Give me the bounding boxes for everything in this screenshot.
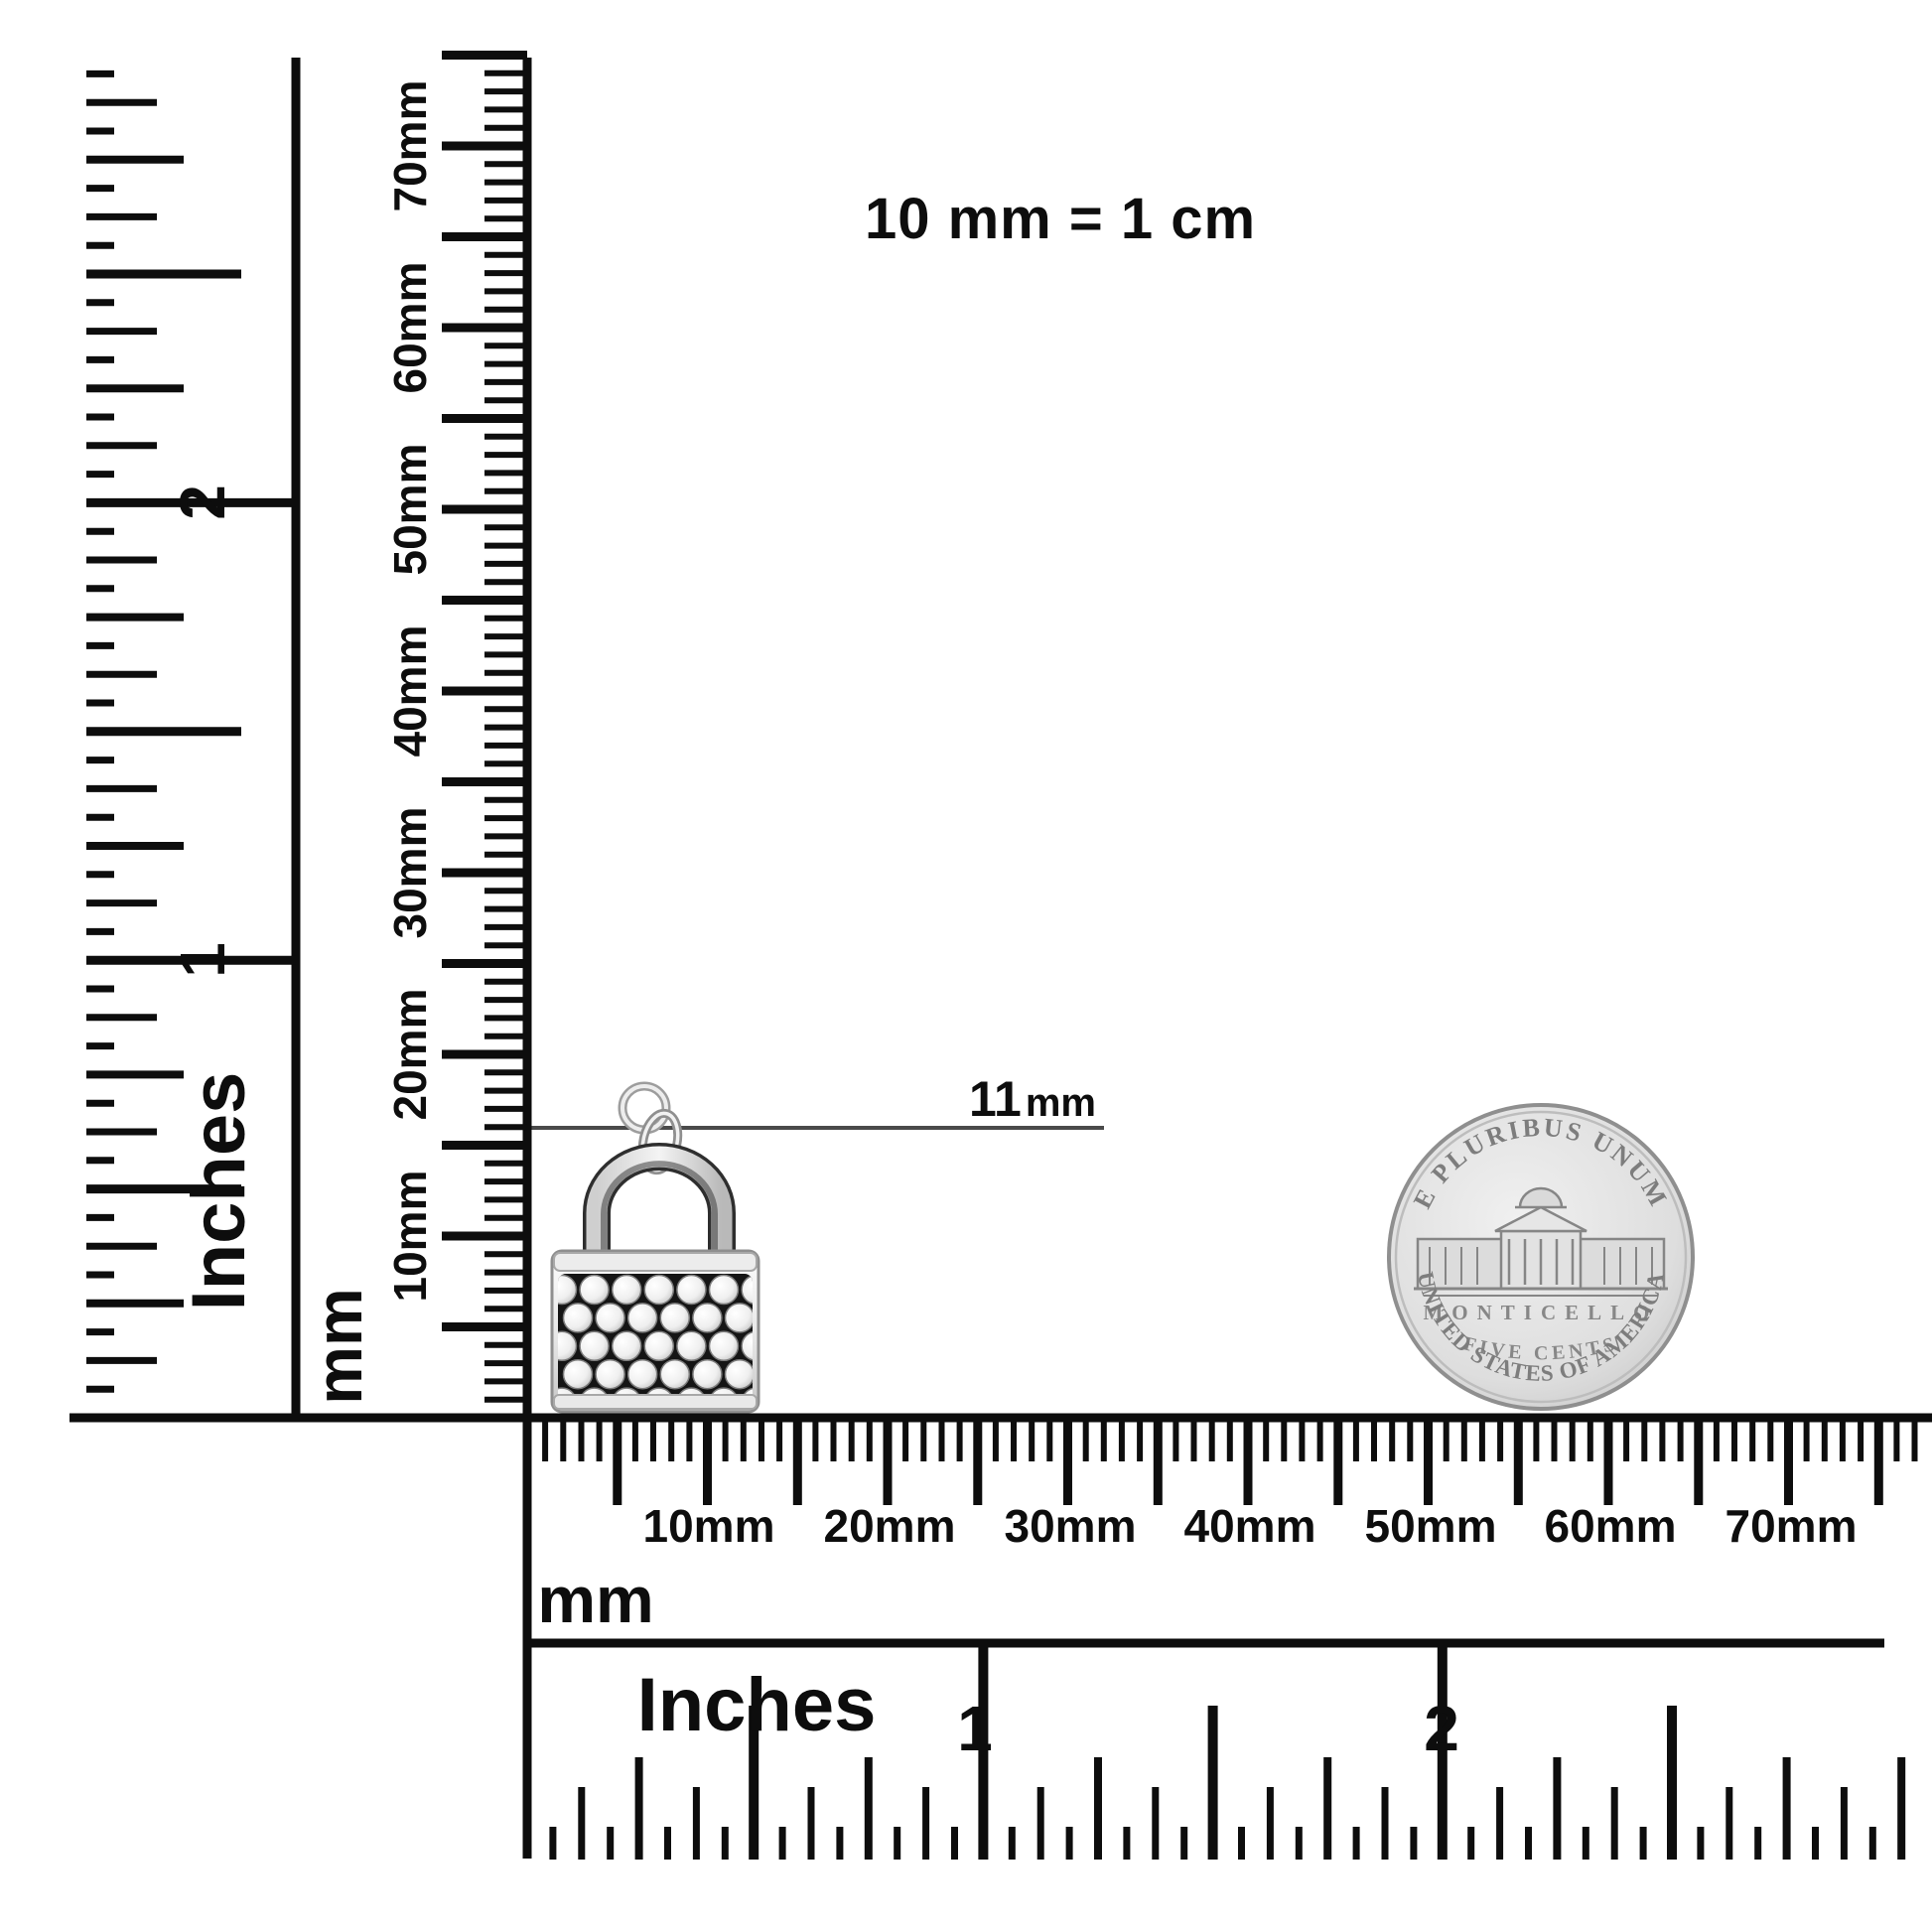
left-mm-ruler-ticks bbox=[442, 56, 527, 1400]
pave-diamond bbox=[677, 1331, 706, 1360]
ruler-tick-set bbox=[754, 1647, 1672, 1860]
bottom-mm-unit: mm bbox=[537, 1563, 653, 1636]
bottom-inches-ruler: Inches 1 2 bbox=[523, 1643, 1901, 1860]
pave-diamond bbox=[710, 1331, 739, 1360]
lock-body-bottom-bar bbox=[554, 1395, 757, 1409]
bottom-mm-label-10: 10mm bbox=[643, 1500, 775, 1552]
bottom-mm-ruler: 10mm 20mm 30mm 40mm 50mm 60mm 70mm mm bbox=[69, 1414, 1932, 1859]
measurement-diagram: 11mm E PLURIBUS UNUM bbox=[0, 0, 1932, 1932]
ruler-tick-set bbox=[86, 274, 296, 1189]
ruler-tick-set bbox=[442, 56, 527, 1327]
scale-note: 10 mm = 1 cm bbox=[865, 187, 1256, 251]
left-mm-label-20: 20mm bbox=[384, 989, 436, 1121]
bottom-inches-unit: Inches bbox=[637, 1663, 877, 1747]
left-mm-label-60: 60mm bbox=[384, 262, 436, 394]
bottom-mm-label-20: 20mm bbox=[824, 1500, 956, 1552]
pave-diamond bbox=[628, 1360, 657, 1389]
bottom-mm-ruler-labels: 10mm 20mm 30mm 40mm 50mm 60mm 70mm bbox=[643, 1500, 1858, 1552]
pave-diamond bbox=[564, 1304, 593, 1332]
pave-diamond bbox=[726, 1360, 755, 1389]
pave-diamond bbox=[596, 1360, 624, 1389]
pave-diamond bbox=[628, 1304, 657, 1332]
left-mm-unit: mm bbox=[302, 1288, 375, 1404]
pave-diamond bbox=[693, 1360, 722, 1389]
shackle-inner-shade bbox=[604, 1164, 715, 1257]
pave-diamond bbox=[564, 1360, 593, 1389]
left-inches-unit: Inches bbox=[177, 1072, 261, 1311]
left-mm-label-40: 40mm bbox=[384, 625, 436, 758]
left-mm-label-10: 10mm bbox=[384, 1171, 436, 1303]
bottom-mm-label-70: 70mm bbox=[1725, 1500, 1858, 1552]
lock-body-top-bar bbox=[554, 1253, 757, 1271]
pave-diamond bbox=[613, 1331, 641, 1360]
pave-diamond bbox=[613, 1276, 641, 1305]
bottom-mm-label-40: 40mm bbox=[1184, 1500, 1316, 1552]
ruler-tick-set bbox=[618, 1422, 1879, 1505]
left-mm-ruler: 70mm 60mm 50mm 40mm 30mm 20mm 10mm mm bbox=[302, 56, 527, 1423]
left-inches-ruler: 2 1 Inches bbox=[86, 58, 296, 1422]
pave-diamond bbox=[677, 1276, 706, 1305]
left-mm-label-50: 50mm bbox=[384, 444, 436, 576]
nickel-coin: E PLURIBUS UNUM MONTICELLO FIVE CENTS UN… bbox=[1389, 1105, 1693, 1409]
jump-ring-top-highlight bbox=[622, 1086, 666, 1130]
pave-diamond bbox=[580, 1276, 609, 1305]
padlock-charm bbox=[548, 1086, 771, 1418]
pave-diamond bbox=[596, 1304, 624, 1332]
pave-diamond bbox=[660, 1360, 689, 1389]
size-annotation-label: 11mm bbox=[969, 1071, 1096, 1127]
pave-diamond bbox=[693, 1304, 722, 1332]
pave-diamond bbox=[660, 1304, 689, 1332]
left-mm-label-30: 30mm bbox=[384, 807, 436, 939]
left-mm-ruler-labels: 70mm 60mm 50mm 40mm 30mm 20mm 10mm bbox=[384, 80, 436, 1303]
pave-diamond bbox=[580, 1331, 609, 1360]
bottom-mm-label-60: 60mm bbox=[1545, 1500, 1677, 1552]
bottom-mm-ruler-ticks bbox=[545, 1422, 1914, 1505]
bottom-mm-label-30: 30mm bbox=[1005, 1500, 1137, 1552]
bottom-inch-label-2: 2 bbox=[1424, 1693, 1459, 1764]
pave-diamond bbox=[644, 1331, 673, 1360]
pave-diamond bbox=[644, 1276, 673, 1305]
left-mm-label-70: 70mm bbox=[384, 80, 436, 212]
ruler-tick-set bbox=[484, 73, 527, 1400]
pave-diamond bbox=[726, 1304, 755, 1332]
pave-diamond bbox=[710, 1276, 739, 1305]
ruler-tick-set bbox=[545, 1422, 1914, 1461]
left-inch-label-2: 2 bbox=[167, 484, 238, 520]
bottom-inch-label-1: 1 bbox=[957, 1693, 993, 1764]
size-annotation: 11mm bbox=[531, 1071, 1104, 1128]
left-inch-label-1: 1 bbox=[167, 942, 238, 978]
bottom-mm-label-50: 50mm bbox=[1365, 1500, 1497, 1552]
